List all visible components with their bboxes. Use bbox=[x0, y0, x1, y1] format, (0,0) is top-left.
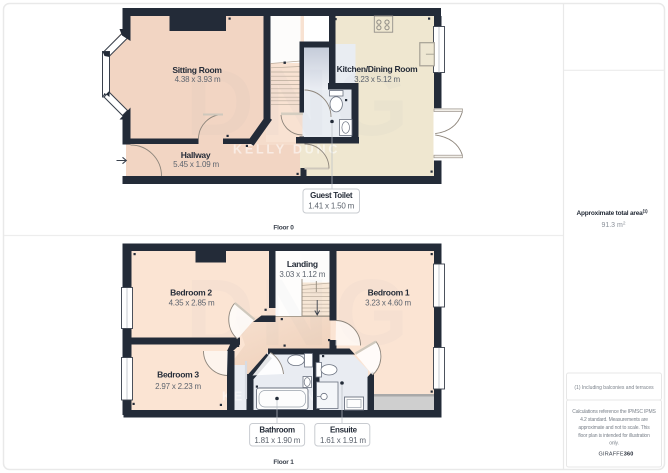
svg-text:Floor 0: Floor 0 bbox=[273, 225, 294, 232]
svg-text:1.41 x 1.50 m: 1.41 x 1.50 m bbox=[308, 201, 354, 210]
svg-text:Calculations reference the IPM: Calculations reference the IPMSC IPMS bbox=[572, 409, 656, 415]
svg-text:Sitting Room: Sitting Room bbox=[172, 65, 222, 75]
svg-text:GIRAFFE360: GIRAFFE360 bbox=[598, 452, 633, 458]
svg-text:only.: only. bbox=[609, 441, 618, 447]
svg-text:1.61 x 1.91 m: 1.61 x 1.91 m bbox=[320, 436, 366, 445]
svg-text:Approximate total area(1): Approximate total area(1) bbox=[577, 209, 649, 218]
svg-text:3.23 x 5.12 m: 3.23 x 5.12 m bbox=[354, 75, 400, 84]
svg-text:Hallway: Hallway bbox=[181, 150, 211, 160]
svg-text:Bathroom: Bathroom bbox=[259, 426, 295, 435]
svg-text:Bedroom 2: Bedroom 2 bbox=[170, 287, 212, 297]
svg-text:(1) Including balconies and te: (1) Including balconies and terraces bbox=[574, 385, 654, 391]
svg-text:4.2 standard. Measurements are: 4.2 standard. Measurements are bbox=[580, 417, 648, 423]
svg-text:3.03 x 1.12 m: 3.03 x 1.12 m bbox=[279, 270, 325, 279]
svg-text:Bedroom 1: Bedroom 1 bbox=[368, 287, 410, 297]
svg-text:3.23 x 4.60 m: 3.23 x 4.60 m bbox=[365, 299, 411, 308]
svg-text:Ensuite: Ensuite bbox=[330, 426, 358, 435]
svg-text:5.45 x 1.09 m: 5.45 x 1.09 m bbox=[173, 160, 219, 169]
svg-text:1.81 x 1.90 m: 1.81 x 1.90 m bbox=[254, 436, 300, 445]
svg-text:Floor 1: Floor 1 bbox=[273, 459, 294, 466]
svg-text:Landing: Landing bbox=[287, 259, 318, 269]
svg-text:Guest Toilet: Guest Toilet bbox=[310, 191, 353, 200]
svg-text:4.38 x 3.93 m: 4.38 x 3.93 m bbox=[175, 75, 221, 84]
svg-text:approximate and not to scale.: approximate and not to scale. This bbox=[578, 425, 650, 431]
svg-text:floor plan is intended for ill: floor plan is intended for illustration bbox=[578, 433, 650, 439]
svg-text:Bedroom 3: Bedroom 3 bbox=[157, 370, 199, 380]
svg-text:2.97 x 2.23 m: 2.97 x 2.23 m bbox=[155, 382, 201, 391]
svg-text:4.35 x 2.85 m: 4.35 x 2.85 m bbox=[169, 299, 215, 308]
svg-text:91.3 m2: 91.3 m2 bbox=[601, 221, 625, 230]
svg-text:Kitchen/Dining Room: Kitchen/Dining Room bbox=[337, 64, 418, 74]
